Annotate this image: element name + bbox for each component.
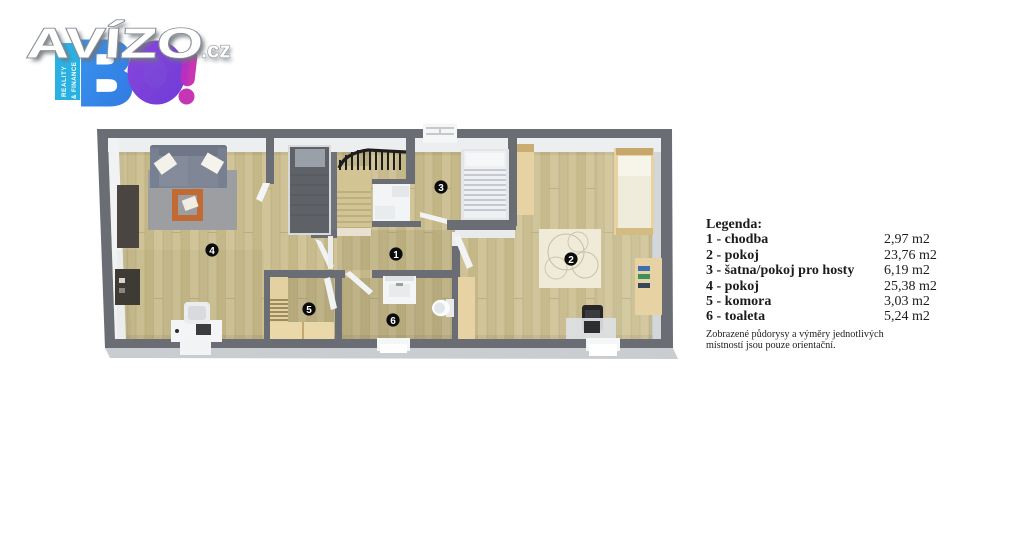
svg-text:5: 5 xyxy=(306,305,312,316)
svg-text:REALITY: REALITY xyxy=(61,65,68,97)
svg-text:AVÍZO: AVÍZO xyxy=(25,20,204,67)
svg-text:3: 3 xyxy=(438,183,444,194)
svg-text:2: 2 xyxy=(568,255,574,266)
svg-text:1: 1 xyxy=(393,250,399,261)
svg-text:4: 4 xyxy=(209,246,215,257)
svg-text:.cz: .cz xyxy=(201,38,230,63)
svg-text:6: 6 xyxy=(390,316,396,327)
